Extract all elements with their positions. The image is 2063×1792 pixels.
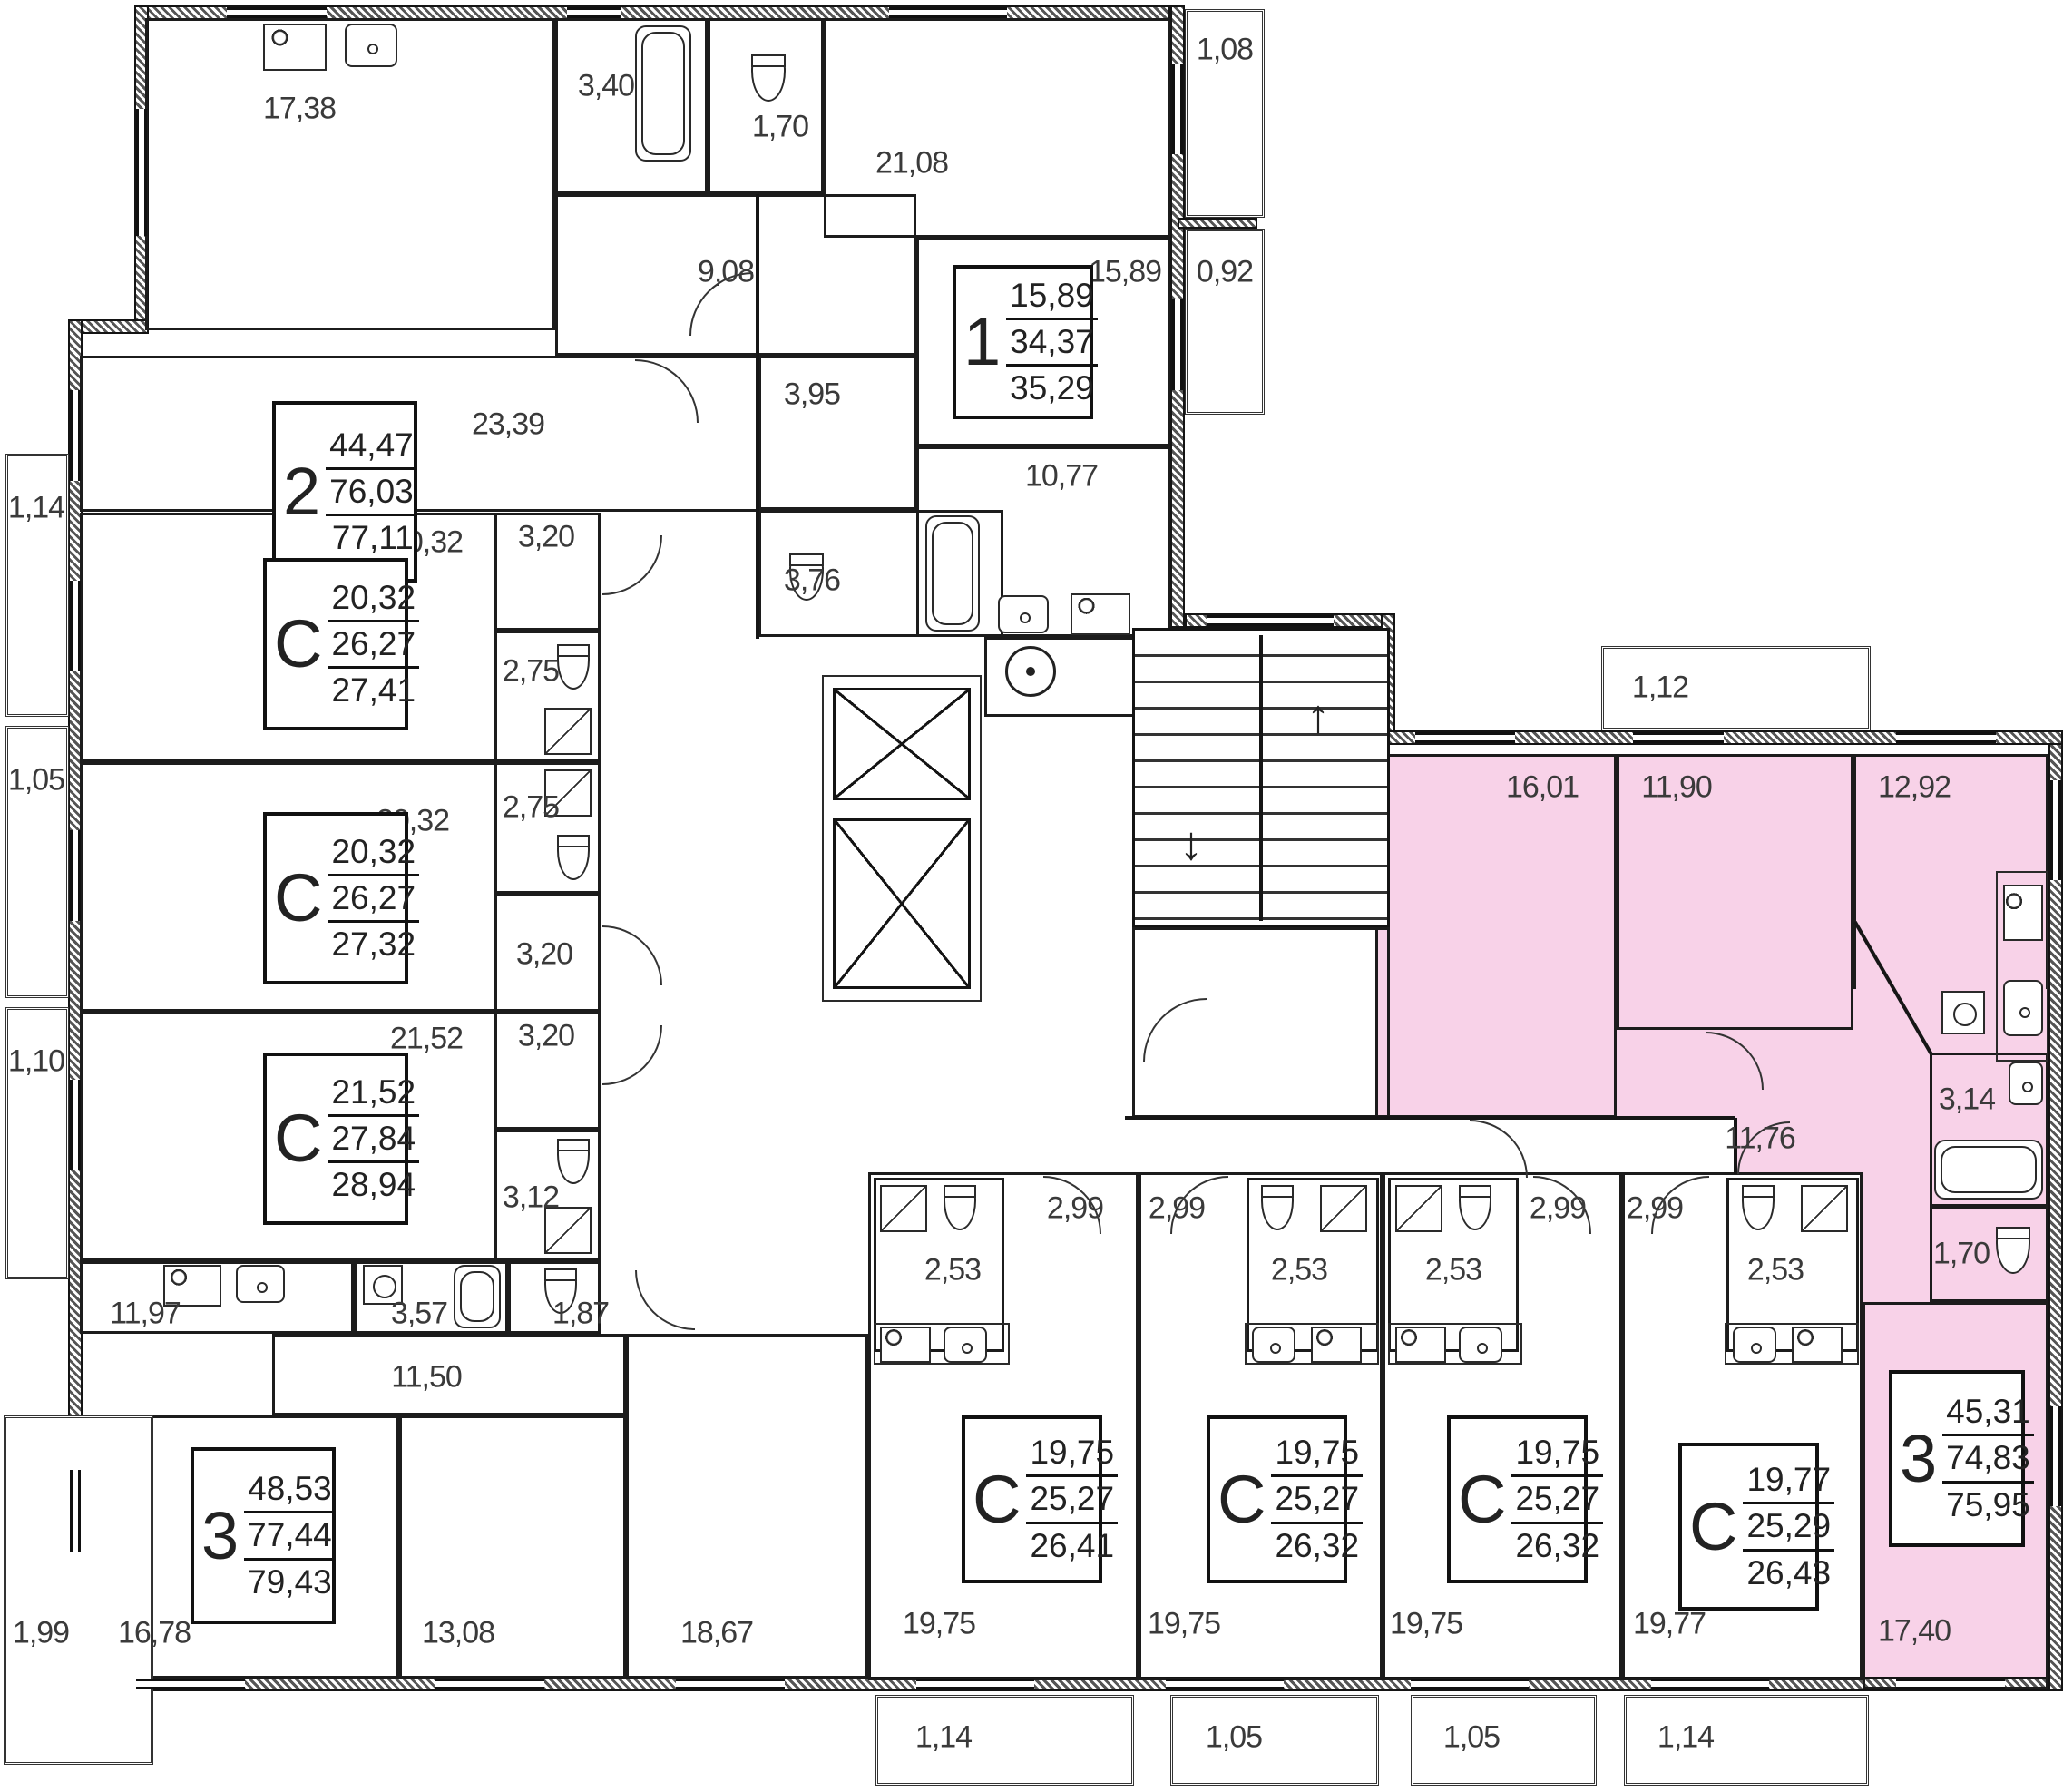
elevator-shaft-outline: [822, 675, 982, 1002]
balcony-bottom-2: [1170, 1695, 1379, 1786]
unit-area-living: 45,31: [1942, 1390, 2034, 1436]
label-s3-hall: 2,99: [1530, 1191, 1586, 1227]
window-apt1-living: [889, 7, 1007, 18]
window-apt2-bath: [567, 7, 621, 18]
label-s2-room: 19,75: [1148, 1607, 1220, 1642]
sink-icon-apt3: [236, 1265, 285, 1303]
unit-area-main: 77,44: [244, 1513, 336, 1560]
unit-info-s2: С 19,75 25,27 26,32: [1207, 1415, 1347, 1583]
door-c2-entry: [602, 925, 662, 985]
label-balc-b3: 1,05: [1443, 1720, 1500, 1756]
window-hl-1740-bottom: [1896, 1679, 2005, 1689]
label-balc-l2: 1,05: [8, 763, 64, 798]
window-hl-1292: [1896, 732, 1996, 743]
unit-area-total: 26,43: [1743, 1552, 1834, 1595]
bathtub-icon-hl: [1934, 1140, 2043, 1200]
label-c2-bath: 2,75: [503, 790, 559, 826]
unit-info-apt1: 1 15,89 34,37 35,29: [953, 265, 1093, 419]
shower-icon-c1: [544, 708, 592, 755]
window-apt3-left: [70, 1470, 81, 1552]
shower-icon-s1: [880, 1185, 927, 1232]
unit-type: С: [274, 611, 322, 678]
label-s4-hall: 2,99: [1627, 1191, 1683, 1227]
window-apt2-kitchen: [227, 7, 327, 18]
stove-icon-apt2: [263, 24, 327, 71]
window-s1: [916, 1679, 1034, 1689]
garbage-chute-icon: [1005, 646, 1056, 697]
stove-icon-hl: [2003, 885, 2043, 941]
unit-area-total: 75,95: [1942, 1484, 2034, 1527]
label-s4-bath: 2,53: [1747, 1253, 1804, 1288]
window-stairs: [1207, 615, 1334, 626]
unit-type: С: [274, 1105, 322, 1172]
unit-area-main: 25,27: [1511, 1477, 1603, 1523]
label-apt1-bath: 3,76: [784, 563, 840, 599]
label-hl-room3: 17,40: [1878, 1614, 1951, 1650]
window-s4: [1651, 1679, 1769, 1689]
label-hl-room2: 11,90: [1641, 770, 1712, 806]
unit-type: 3: [201, 1503, 239, 1570]
label-c3-room: 21,52: [390, 1022, 463, 1057]
label-apt2-living: 23,39: [472, 407, 544, 443]
window-c3: [70, 1080, 81, 1170]
label-apt1-bedroom: 15,89: [1089, 255, 1161, 290]
unit-type: 1: [963, 308, 1001, 376]
label-balc-tr2: 0,92: [1197, 255, 1253, 290]
label-c1-bath: 2,75: [503, 654, 559, 690]
stove-icon-s2: [1311, 1327, 1362, 1363]
balcony-bottom-1: [875, 1695, 1134, 1786]
stove-icon-s1: [880, 1327, 931, 1363]
label-apt3-kitchen: 11,97: [110, 1297, 181, 1332]
wall-corridor-top: [1125, 1116, 1735, 1120]
wall-corridor-left: [756, 194, 759, 639]
unit-area-total: 26,32: [1511, 1524, 1603, 1568]
unit-info-s4: С 19,77 25,29 26,43: [1678, 1443, 1819, 1611]
stove-icon-apt1: [1071, 593, 1130, 635]
window-hl-kitchen-right: [2050, 780, 2061, 880]
label-c3-bath: 3,12: [503, 1180, 559, 1216]
sink-icon-hl-bath: [2009, 1062, 2043, 1105]
label-apt3-wc: 1,87: [552, 1297, 609, 1332]
unit-type: 2: [283, 458, 320, 525]
label-s1-room: 19,75: [903, 1607, 975, 1642]
label-balc-apt3: 1,99: [13, 1616, 69, 1651]
label-apt1-room: 21,08: [875, 146, 948, 181]
unit-info-c3: С 21,52 27,84 28,94: [263, 1053, 408, 1225]
stair-arrow-up: ↑: [1306, 690, 1330, 744]
label-apt3-room3: 18,67: [680, 1616, 753, 1651]
label-apt3-room2: 13,08: [422, 1616, 494, 1651]
sink-icon-s2: [1252, 1327, 1295, 1363]
label-apt3-hall: 11,50: [391, 1360, 462, 1395]
shower-icon-s4: [1801, 1185, 1848, 1232]
window-c2: [70, 830, 81, 921]
unit-area-living: 15,89: [1006, 274, 1098, 320]
room-apt2-wc: [708, 18, 824, 194]
unit-info-apt3: 3 48,53 77,44 79,43: [191, 1447, 336, 1624]
unit-area-living: 19,75: [1271, 1431, 1363, 1477]
unit-area-main: 25,27: [1271, 1477, 1363, 1523]
unit-info-highlighted: 3 45,31 74,83 75,95: [1889, 1370, 2025, 1547]
sink-icon-apt2: [345, 24, 397, 67]
unit-area-main: 25,29: [1743, 1504, 1834, 1551]
label-balc-tr1: 1,08: [1197, 33, 1253, 68]
label-balc-l1: 1,14: [8, 491, 64, 526]
label-hl-bath: 3,14: [1939, 1082, 1995, 1118]
window-s2: [1166, 1679, 1284, 1689]
door-c1-entry: [602, 535, 662, 595]
label-s4-room: 19,77: [1633, 1607, 1706, 1642]
window-apt1-balc2: [1172, 299, 1183, 390]
unit-area-total: 26,32: [1271, 1524, 1363, 1568]
label-apt2-hall: 9,08: [698, 255, 754, 290]
window-hl-1601: [1415, 732, 1515, 743]
door-hl-1601: [1470, 1120, 1528, 1178]
unit-area-total: 27,41: [328, 669, 419, 712]
shower-icon-s3: [1395, 1185, 1442, 1232]
unit-area-main: 25,27: [1026, 1477, 1118, 1523]
label-apt2-kitchen: 17,38: [263, 92, 336, 127]
label-balc-b4: 1,14: [1657, 1720, 1714, 1756]
unit-area-main: 26,27: [328, 876, 419, 923]
unit-area-living: 48,53: [244, 1467, 336, 1513]
label-apt2-bath: 3,40: [578, 69, 634, 104]
label-balc-hl: 1,12: [1632, 671, 1688, 706]
label-s3-room: 19,75: [1390, 1607, 1462, 1642]
unit-area-living: 19,75: [1511, 1431, 1603, 1477]
sink-icon-apt1: [998, 595, 1049, 633]
stove-icon-s4: [1792, 1327, 1843, 1363]
unit-area-main: 76,03: [326, 470, 417, 516]
label-apt2-wc: 1,70: [752, 110, 808, 145]
label-apt3-room1: 16,78: [118, 1616, 191, 1651]
sink-icon-s1: [944, 1327, 987, 1363]
unit-info-s3: С 19,75 25,27 26,32: [1447, 1415, 1588, 1583]
unit-type: 3: [1900, 1425, 1937, 1493]
label-s2-hall: 2,99: [1149, 1191, 1205, 1227]
window-apt2-left: [136, 109, 147, 236]
sink-icon-s4: [1733, 1327, 1776, 1363]
unit-type: С: [1217, 1466, 1266, 1533]
floor-plan: ↑ ↓: [0, 0, 2063, 1792]
bathtub-icon-apt1: [925, 515, 980, 632]
label-s2-bath: 2,53: [1271, 1253, 1327, 1288]
window-s3: [1411, 1679, 1529, 1689]
unit-area-main: 27,84: [328, 1117, 419, 1163]
window-apt1-balc1: [1172, 64, 1183, 154]
unit-info-s1: С 19,75 25,27 26,41: [962, 1415, 1102, 1583]
bathtub-icon-apt2: [635, 25, 691, 162]
window-hl-1740-right: [2050, 1406, 2061, 1506]
room-hl-1601: [1375, 754, 1617, 1118]
window-apt3-room1: [136, 1679, 245, 1689]
room-apt1-living: [824, 18, 1170, 238]
unit-info-apt2: 2 44,47 76,03 77,11: [272, 401, 417, 583]
unit-area-main: 34,37: [1006, 320, 1098, 367]
label-hl-wc: 1,70: [1933, 1237, 1990, 1272]
label-balc-b1: 1,14: [915, 1720, 972, 1756]
label-s1-hall: 2,99: [1047, 1191, 1103, 1227]
unit-type: С: [1689, 1493, 1737, 1561]
unit-area-living: 20,32: [328, 576, 419, 622]
label-c1-hall: 3,20: [518, 520, 574, 555]
unit-area-total: 28,94: [328, 1163, 419, 1207]
stair-arrow-down: ↓: [1179, 817, 1203, 871]
balcony-bottom-3: [1411, 1695, 1597, 1786]
unit-area-total: 35,29: [1006, 367, 1098, 410]
label-apt3-bath: 3,57: [391, 1297, 447, 1332]
unit-area-main: 26,27: [328, 622, 419, 669]
label-c2-hall: 3,20: [516, 937, 572, 973]
unit-type: С: [1458, 1466, 1506, 1533]
label-balc-l3: 1,10: [8, 1044, 64, 1080]
sink-icon-hl: [2003, 980, 2043, 1036]
unit-area-living: 19,75: [1026, 1431, 1118, 1477]
window-hl-1190: [1633, 732, 1724, 743]
unit-area-living: 20,32: [328, 830, 419, 876]
unit-area-total: 77,11: [326, 516, 417, 560]
stove-icon-s3: [1395, 1327, 1446, 1363]
balcony-apt3: [4, 1415, 153, 1765]
label-s1-bath: 2,53: [924, 1253, 981, 1288]
unit-info-c2: С 20,32 26,27 27,32: [263, 812, 408, 984]
door-c3-entry: [602, 1025, 662, 1085]
unit-area-living: 44,47: [326, 424, 417, 470]
bathtub-icon-apt3: [454, 1265, 501, 1328]
shower-icon-s2: [1320, 1185, 1367, 1232]
label-apt1-hall: 3,95: [784, 377, 840, 413]
unit-info-c1: С 20,32 26,27 27,41: [263, 558, 408, 730]
label-c3-hall: 3,20: [518, 1019, 574, 1054]
window-apt3-room2: [435, 1679, 544, 1689]
unit-area-living: 21,52: [328, 1071, 419, 1117]
label-hl-hall: 11,76: [1725, 1121, 1795, 1157]
window-apt3-room3: [676, 1679, 785, 1689]
door-apt3-entry: [635, 1270, 695, 1330]
unit-area-total: 79,43: [244, 1561, 336, 1604]
sink-icon-s3: [1459, 1327, 1502, 1363]
stair-stringer: [1259, 635, 1263, 921]
label-s3-bath: 2,53: [1425, 1253, 1481, 1288]
washer-icon-hl: [1941, 991, 1985, 1034]
label-hl-kitchen: 12,92: [1878, 770, 1951, 806]
unit-area-total: 26,41: [1026, 1524, 1118, 1568]
unit-area-main: 74,83: [1942, 1436, 2034, 1483]
window-c1: [70, 581, 81, 671]
unit-type: С: [973, 1466, 1021, 1533]
label-hl-room1: 16,01: [1506, 770, 1579, 806]
window-c0: [70, 390, 81, 481]
unit-type: С: [274, 865, 322, 932]
unit-area-total: 27,32: [328, 923, 419, 966]
wall-balcony-divider-tr: [1178, 218, 1257, 229]
unit-area-living: 19,77: [1743, 1458, 1834, 1504]
label-balc-b2: 1,05: [1206, 1720, 1262, 1756]
label-apt1-kitchen: 10,77: [1025, 459, 1098, 495]
